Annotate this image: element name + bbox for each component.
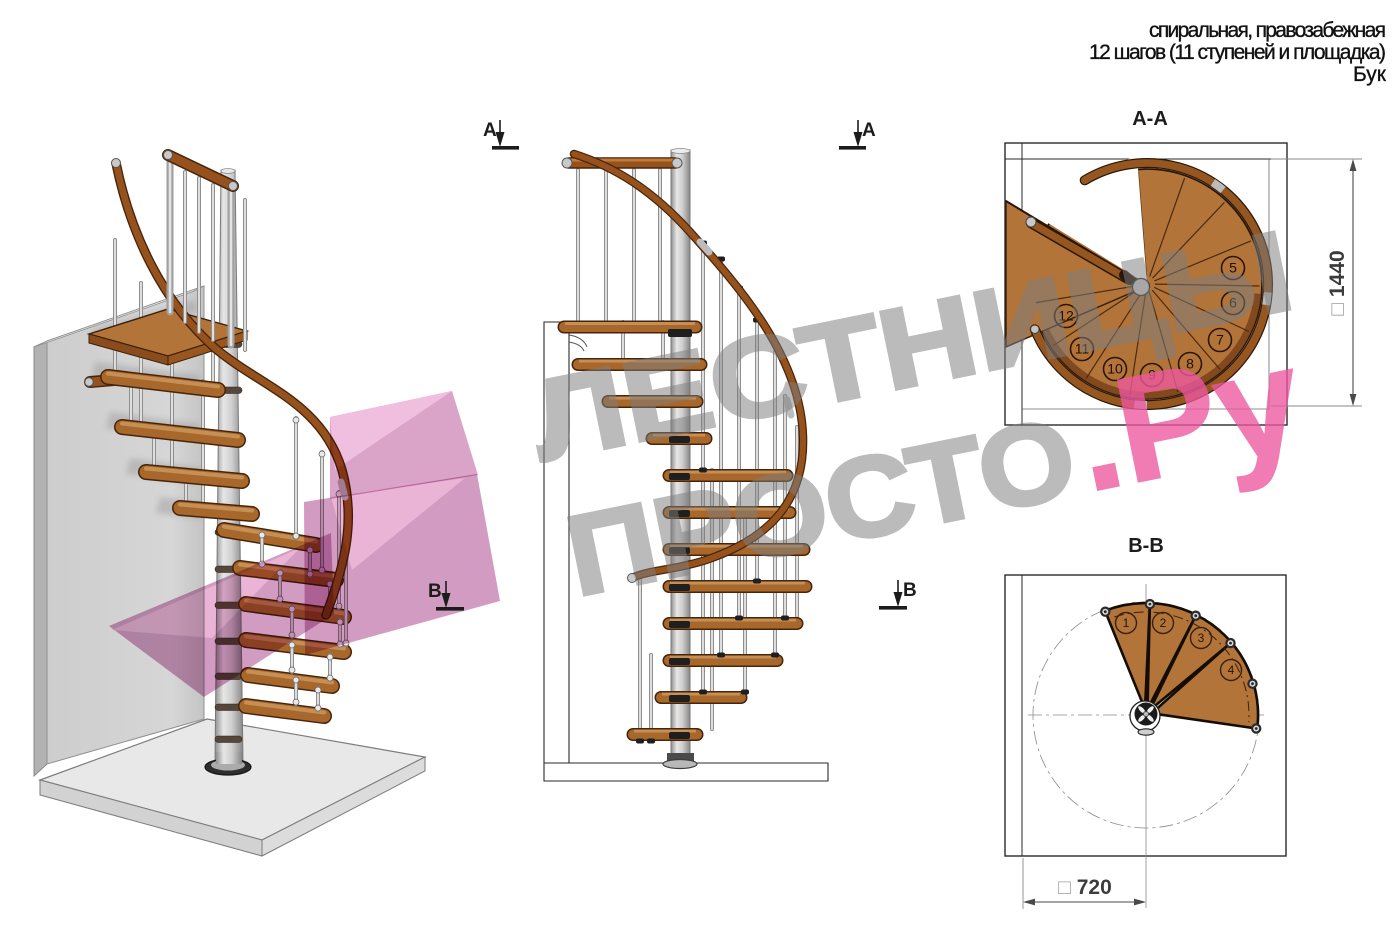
svg-text:B: B bbox=[428, 581, 442, 602]
svg-text:B: B bbox=[903, 580, 917, 601]
svg-text:12 шагов (11 ступеней и площад: 12 шагов (11 ступеней и площадка) bbox=[1089, 41, 1386, 64]
svg-text:спиральная, правозабежная: спиральная, правозабежная bbox=[1149, 19, 1386, 42]
svg-text:A: A bbox=[862, 120, 876, 141]
svg-text:3: 3 bbox=[1198, 631, 1205, 645]
svg-text:1: 1 bbox=[1123, 616, 1130, 630]
svg-text:4: 4 bbox=[1228, 663, 1235, 677]
svg-text:□ 1440: □ 1440 bbox=[1326, 250, 1349, 315]
svg-text:Бук: Бук bbox=[1353, 63, 1387, 86]
svg-text:2: 2 bbox=[1160, 616, 1167, 630]
svg-text:□ 720: □ 720 bbox=[1058, 876, 1112, 899]
svg-text:A-A: A-A bbox=[1132, 108, 1168, 130]
svg-text:A: A bbox=[483, 120, 497, 141]
svg-text:B-B: B-B bbox=[1128, 535, 1164, 557]
